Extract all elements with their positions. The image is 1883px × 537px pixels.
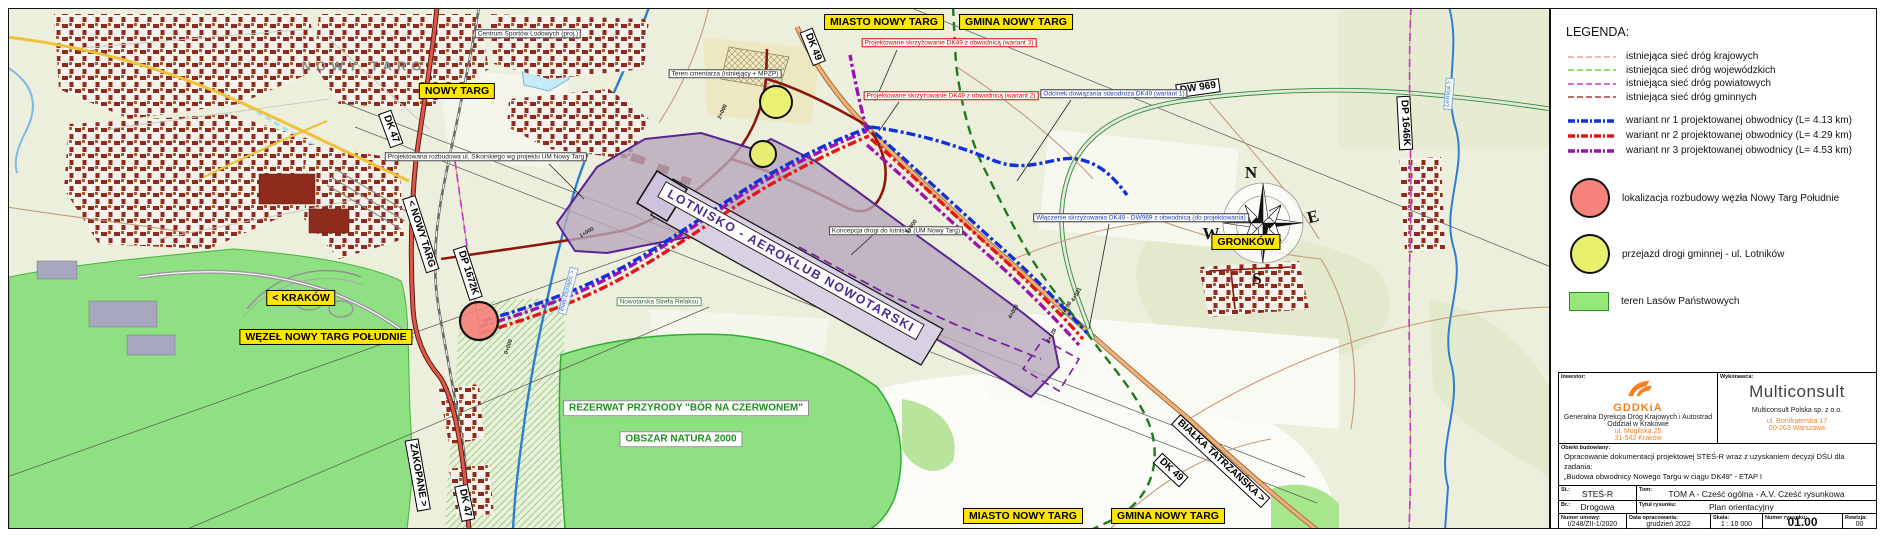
km-label-km-4531: 4+531 xyxy=(1070,287,1083,304)
area-label-rezerwat: REZERWAT PRZYRODY "BÓR NA CZERWONEM" xyxy=(563,400,809,416)
green-area-swatch xyxy=(1569,292,1609,311)
contract-label: Numer umowy: xyxy=(1561,515,1601,521)
stage-label: St.: xyxy=(1561,487,1570,493)
yellow-circle-swatch xyxy=(1570,234,1610,274)
investor-label: Inwestor: xyxy=(1561,374,1585,380)
legend-title: LEGENDA: xyxy=(1566,25,1868,39)
scale-value: 1 : 10 000 xyxy=(1721,521,1752,529)
drawing-no-cell: Numer rysunku: 01.00 xyxy=(1763,514,1843,529)
road-label-bialka-direction: BIAŁKA TATRZAŃSKA > xyxy=(1171,414,1270,508)
annotation-teren-cmentarza: Teren cmentarza (istniejący + MPZP) xyxy=(669,69,782,78)
map-canvas: N E W S MIASTO NOWY TARGGMINA NOWY TARGN… xyxy=(8,8,1550,529)
compass-south-label: S xyxy=(1252,269,1261,289)
legend-variant-item-1: wariant nr 2 projektowanej obwodnicy (L=… xyxy=(1566,128,1868,143)
km-label-km-4: 4+000 xyxy=(1007,304,1020,321)
area-label-natura-2000: OBSZAR NATURA 2000 xyxy=(619,431,742,447)
title-block: Inwestor: GDDKiA Generalna Dyrekcja Dróg… xyxy=(1558,372,1876,528)
legend-road-item-2: istniejąca sieć dróg powiatowych xyxy=(1566,77,1868,91)
river-label-bialy-dunajec: Biały Dunajec > xyxy=(558,267,579,316)
legend-line-swatch xyxy=(1566,92,1618,102)
annotation-strefa-relaksu: Nowotarska Strefa Relaksu xyxy=(617,297,702,306)
annotation-wlaczenie-dw969: Włączenie skrzyżowania DK49 - DW969 z ob… xyxy=(1033,213,1249,222)
map-label-krakow-direction: < KRAKÓW xyxy=(266,290,335,306)
object-label: Obiekt budowlany: xyxy=(1561,445,1610,451)
gddkia-logo-icon xyxy=(1621,379,1655,397)
map-label-nowy-targ: NOWY TARG xyxy=(419,83,495,99)
stage-volume-row: St.: STEŚ-R Tom: TOM A - Cześć ogólna - … xyxy=(1559,485,1876,500)
drawing-title-cell: Tytuł rysunku: Plan orientacyjny xyxy=(1637,501,1876,513)
annotation-skrzyzowanie-w2: Projektowane skrzyżowanie DK49 z obwodni… xyxy=(864,91,1039,100)
legend-item-node-junction: lokalizacja rozbudowy węzła Nowy Targ Po… xyxy=(1566,178,1868,218)
legend-line-swatch xyxy=(1566,65,1618,75)
branch-cell: Br.: Drogowa xyxy=(1559,501,1637,513)
map-label-gmina-nowy-targ-top: GMINA NOWY TARG xyxy=(959,14,1073,30)
annotation-rozbudowa-sikorskiego: Projektowana rozbudowa ul. Sikorskiego w… xyxy=(385,152,587,161)
legend-item-label: przejazd drogi gminnej - ul. Lotników xyxy=(1622,249,1784,260)
contractor-label: Wykonawca: xyxy=(1720,374,1753,380)
side-panel: LEGENDA: istniejąca sieć dróg krajowychi… xyxy=(1550,8,1877,529)
investor-city: 31-542 Kraków xyxy=(1559,435,1717,442)
date-cell: Data opracowania: grudzień 2022 xyxy=(1627,514,1711,529)
contract-cell: Numer umowy: I/248/ZII-1/2020 xyxy=(1559,514,1627,529)
contract-value: I/248/ZII-1/2020 xyxy=(1568,521,1617,529)
annotation-odcinek-w1: Odcinek dowiązania starodroża DK49 (wari… xyxy=(1040,89,1187,98)
volume-cell: Tom: TOM A - Cześć ogólna - A.V. Cześć r… xyxy=(1637,486,1876,500)
scale-cell: Skala: 1 : 10 000 xyxy=(1711,514,1763,529)
legend-road-items: istniejąca sieć dróg krajowychistniejąca… xyxy=(1566,50,1868,104)
legend-item-gminna-crossing: przejazd drogi gminnej - ul. Lotników xyxy=(1566,234,1868,274)
stage-value: STEŚ-R xyxy=(1582,489,1613,500)
investor-name: Generalna Dyrekcja Dróg Krajowych i Auto… xyxy=(1559,414,1717,421)
title-block-logos-row: Inwestor: GDDKiA Generalna Dyrekcja Dróg… xyxy=(1559,373,1876,443)
road-label-zakopane-direction: ZAKOPANE > xyxy=(405,438,431,511)
km-label-km-1: 1+000 xyxy=(579,226,596,239)
road-label-dk47-bottom: DK 47 xyxy=(455,484,476,522)
drawing-sheet: N E W S MIASTO NOWY TARGGMINA NOWY TARGN… xyxy=(0,0,1883,537)
legend-item-label: lokalizacja rozbudowy węzła Nowy Targ Po… xyxy=(1622,193,1839,204)
km-label-km-0: 0+000 xyxy=(503,339,514,356)
annotation-skrzyzowanie-w3: Projektowane skrzyżowanie DK49 z obwodni… xyxy=(862,38,1037,47)
volume-value: TOM A - Cześć ogólna - A.V. Cześć rysunk… xyxy=(1668,489,1844,500)
branch-label: Br.: xyxy=(1561,502,1570,508)
red-circle-swatch xyxy=(1570,178,1610,218)
drawing-title-label: Tytuł rysunku: xyxy=(1639,502,1677,508)
area-label-town-name: NOWY TARG xyxy=(302,60,427,75)
road-label-dp1646k: DP 1646K xyxy=(1397,96,1413,151)
legend-item-state-forest: teren Lasów Państwowych xyxy=(1566,292,1868,311)
revision-value: 00 xyxy=(1856,521,1864,529)
branch-value: Drogowa xyxy=(1580,502,1614,513)
map-label-gronkow: GRONKÓW xyxy=(1211,234,1280,250)
legend-variant-item-2: wariant nr 3 projektowanej obwodnicy (L=… xyxy=(1566,143,1868,158)
map-label-miasto-nowy-targ-bottom: MIASTO NOWY TARG xyxy=(963,508,1083,524)
legend-item-label: istniejąca sieć dróg wojewódzkich xyxy=(1626,65,1776,76)
multiconsult-wordmark: Multiconsult xyxy=(1718,382,1876,402)
legend-line-swatch xyxy=(1566,52,1618,62)
compass-north-label: N xyxy=(1245,163,1257,183)
date-value: grudzień 2022 xyxy=(1646,521,1690,529)
legend-item-label: istniejąca sieć dróg powiatowych xyxy=(1626,78,1771,89)
contractor-cell: Wykonawca: Multiconsult Multiconsult Pol… xyxy=(1718,373,1876,443)
drawing-title-value: Plan orientacyjny xyxy=(1709,502,1774,513)
stage-cell: St.: STEŚ-R xyxy=(1559,486,1637,500)
annotation-koncepcja-lotnisko: Koncepcja drogi do lotniska (UM Nowy Tar… xyxy=(829,226,963,235)
revision-cell: Rewizja: 00 xyxy=(1843,514,1876,529)
km-label-km-4298: 4+298 xyxy=(1060,301,1073,318)
legend-item-label: wariant nr 1 projektowanej obwodnicy (L=… xyxy=(1626,115,1852,126)
investor-cell: Inwestor: GDDKiA Generalna Dyrekcja Dróg… xyxy=(1559,373,1718,443)
object-row: Obiekt budowlany: Opracowanie dokumentac… xyxy=(1559,443,1876,485)
road-label-dp1672k: DP 1672K xyxy=(453,245,483,300)
legend-line-swatch xyxy=(1566,116,1618,126)
legend-road-item-0: istniejąca sieć dróg krajowych xyxy=(1566,50,1868,64)
investor-branch: Oddział w Krakowie xyxy=(1559,421,1717,428)
legend: LEGENDA: istniejąca sieć dróg krajowychi… xyxy=(1566,25,1868,311)
map-label-layer: N E W S MIASTO NOWY TARGGMINA NOWY TARGN… xyxy=(9,9,1549,528)
legend-line-swatch xyxy=(1566,146,1618,156)
date-label: Data opracowania: xyxy=(1629,515,1678,521)
drawing-no-label: Numer rysunku: xyxy=(1765,515,1807,521)
scale-label: Skala: xyxy=(1713,515,1729,521)
legend-road-item-1: istniejąca sieć dróg wojewódzkich xyxy=(1566,64,1868,78)
contract-row: Numer umowy: I/248/ZII-1/2020 Data oprac… xyxy=(1559,513,1876,529)
contractor-city: 00-203 Warszawa xyxy=(1718,425,1876,432)
legend-item-label: wariant nr 2 projektowanej obwodnicy (L=… xyxy=(1626,130,1852,141)
legend-road-item-3: istniejąca sieć dróg gminnych xyxy=(1566,91,1868,105)
map-label-miasto-nowy-targ-top: MIASTO NOWY TARG xyxy=(824,14,944,30)
investor-street: ul. Mogilska 25 xyxy=(1559,428,1717,435)
compass-east-label: E xyxy=(1305,206,1321,228)
object-line2: „Budowa obwodnicy Nowego Targu w ciągu D… xyxy=(1564,472,1872,482)
contractor-name: Multiconsult Polska sp. z o.o. xyxy=(1718,407,1876,414)
legend-variant-items: wariant nr 1 projektowanej obwodnicy (L=… xyxy=(1566,113,1868,158)
object-line1: Opracowanie dokumentacji projektowej STE… xyxy=(1564,452,1872,472)
road-label-dk49-top: DK 49 xyxy=(800,28,826,67)
km-label-km-2: 2+000 xyxy=(717,104,729,121)
volume-label: Tom: xyxy=(1639,487,1652,493)
legend-variant-item-0: wariant nr 1 projektowanej obwodnicy (L=… xyxy=(1566,113,1868,128)
revision-label: Rewizja: xyxy=(1845,515,1867,521)
legend-line-swatch xyxy=(1566,79,1618,89)
contractor-street: ul. Bonifraterska 17 xyxy=(1718,418,1876,425)
area-label-lotnisko: LOTNISKO - AEROKLUB NOWOTARSKI xyxy=(657,181,925,341)
map-label-wezel-nowy-targ-poludnie: WĘZEŁ NOWY TARG POŁUDNIE xyxy=(239,329,412,345)
river-label-lesnica: Leśnica > xyxy=(1443,78,1455,111)
branch-title-row: Br.: Drogowa Tytuł rysunku: Plan orienta… xyxy=(1559,500,1876,513)
legend-item-label: istniejąca sieć dróg gminnych xyxy=(1626,92,1757,103)
map-label-gmina-nowy-targ-bottom: GMINA NOWY TARG xyxy=(1111,508,1225,524)
legend-item-label: wariant nr 3 projektowanej obwodnicy (L=… xyxy=(1626,145,1852,156)
road-label-nowy-targ-direction: < NOWY TARG xyxy=(403,195,440,273)
gddkia-wordmark: GDDKiA xyxy=(1559,402,1717,414)
annotation-centrum-sportow: Centrum Sportów Lodowych (proj.) xyxy=(475,29,581,38)
road-label-dk49-bottom: DK 49 xyxy=(1153,453,1189,488)
km-label-km-4128: 4+128 xyxy=(1045,328,1058,345)
legend-item-label: teren Lasów Państwowych xyxy=(1621,296,1739,307)
legend-item-label: istniejąca sieć dróg krajowych xyxy=(1626,51,1758,62)
road-label-dk47-top: DK 47 xyxy=(378,110,403,149)
legend-line-swatch xyxy=(1566,131,1618,141)
